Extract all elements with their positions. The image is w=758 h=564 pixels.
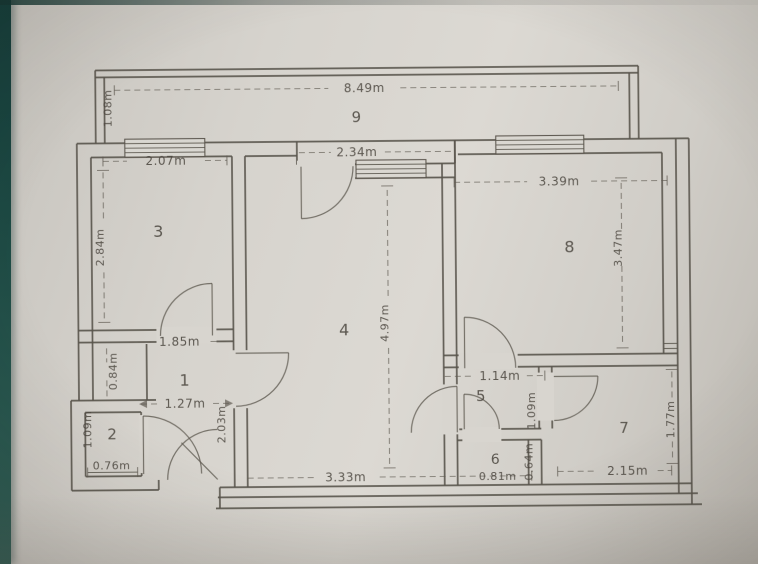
dim-room8-width: 3.39m bbox=[539, 174, 580, 188]
dim-total-width: 8.49m bbox=[344, 81, 385, 95]
dim-room4-top-width: 2.34m bbox=[336, 145, 377, 159]
room-label-3: 3 bbox=[153, 222, 164, 241]
dim-hall-bottom-width: 1.27m bbox=[165, 397, 206, 411]
photo-top-shadow bbox=[0, 0, 758, 5]
dim-room4-height: 4.97m bbox=[378, 304, 391, 342]
dim-hall-height: 2.03m bbox=[215, 405, 228, 443]
floor-plan-photo: 8.49m 1.08m 9 2.07m 2.84m 3 2.34m 4.97m … bbox=[0, 0, 758, 564]
window-room4-balcony bbox=[356, 160, 426, 179]
room-label-4: 4 bbox=[339, 320, 350, 339]
dim-room3-height: 2.84m bbox=[94, 229, 107, 267]
walls bbox=[68, 65, 702, 509]
dim-wc2-height: 1.09m bbox=[81, 411, 94, 449]
dim-hall5-height: 1.09m bbox=[525, 392, 538, 430]
room-label-7: 7 bbox=[619, 419, 629, 437]
door-room2-wc bbox=[143, 416, 202, 475]
dim-room8-height: 3.47m bbox=[612, 229, 625, 267]
room-label-1: 1 bbox=[179, 371, 190, 390]
photo-edge-strip bbox=[0, 0, 11, 564]
room-label-2: 2 bbox=[107, 425, 117, 443]
dim-balcony-depth: 1.08m bbox=[101, 89, 114, 127]
dim-room7-width: 2.15m bbox=[607, 464, 648, 478]
dim-room7-height: 1.77m bbox=[664, 401, 677, 439]
room-label-6: 6 bbox=[491, 452, 501, 468]
dim-bottom-span: 3.33m bbox=[325, 470, 366, 484]
window-room8-balcony bbox=[496, 135, 584, 154]
dim-room6-width: 0.81m bbox=[479, 470, 517, 483]
dim-room3-width: 2.07m bbox=[145, 154, 186, 168]
dim-hall-top-width: 1.85m bbox=[159, 335, 200, 349]
door-openings bbox=[137, 158, 555, 473]
door-hall5-room7 bbox=[554, 376, 598, 420]
floor-plan-drawing: 8.49m 1.08m 9 2.07m 2.84m 3 2.34m 4.97m … bbox=[0, 0, 758, 564]
doors bbox=[141, 164, 599, 480]
dim-wc2-width: 0.76m bbox=[93, 459, 131, 472]
door-entrance bbox=[167, 429, 217, 479]
dim-hall5-width: 1.14m bbox=[479, 369, 520, 383]
dim-closet-depth: 0.84m bbox=[107, 352, 120, 390]
room-label-9: 9 bbox=[351, 108, 361, 126]
room-label-8: 8 bbox=[564, 237, 575, 256]
room-label-5: 5 bbox=[476, 387, 486, 405]
dim-room6-height: 0.64m bbox=[522, 443, 535, 481]
